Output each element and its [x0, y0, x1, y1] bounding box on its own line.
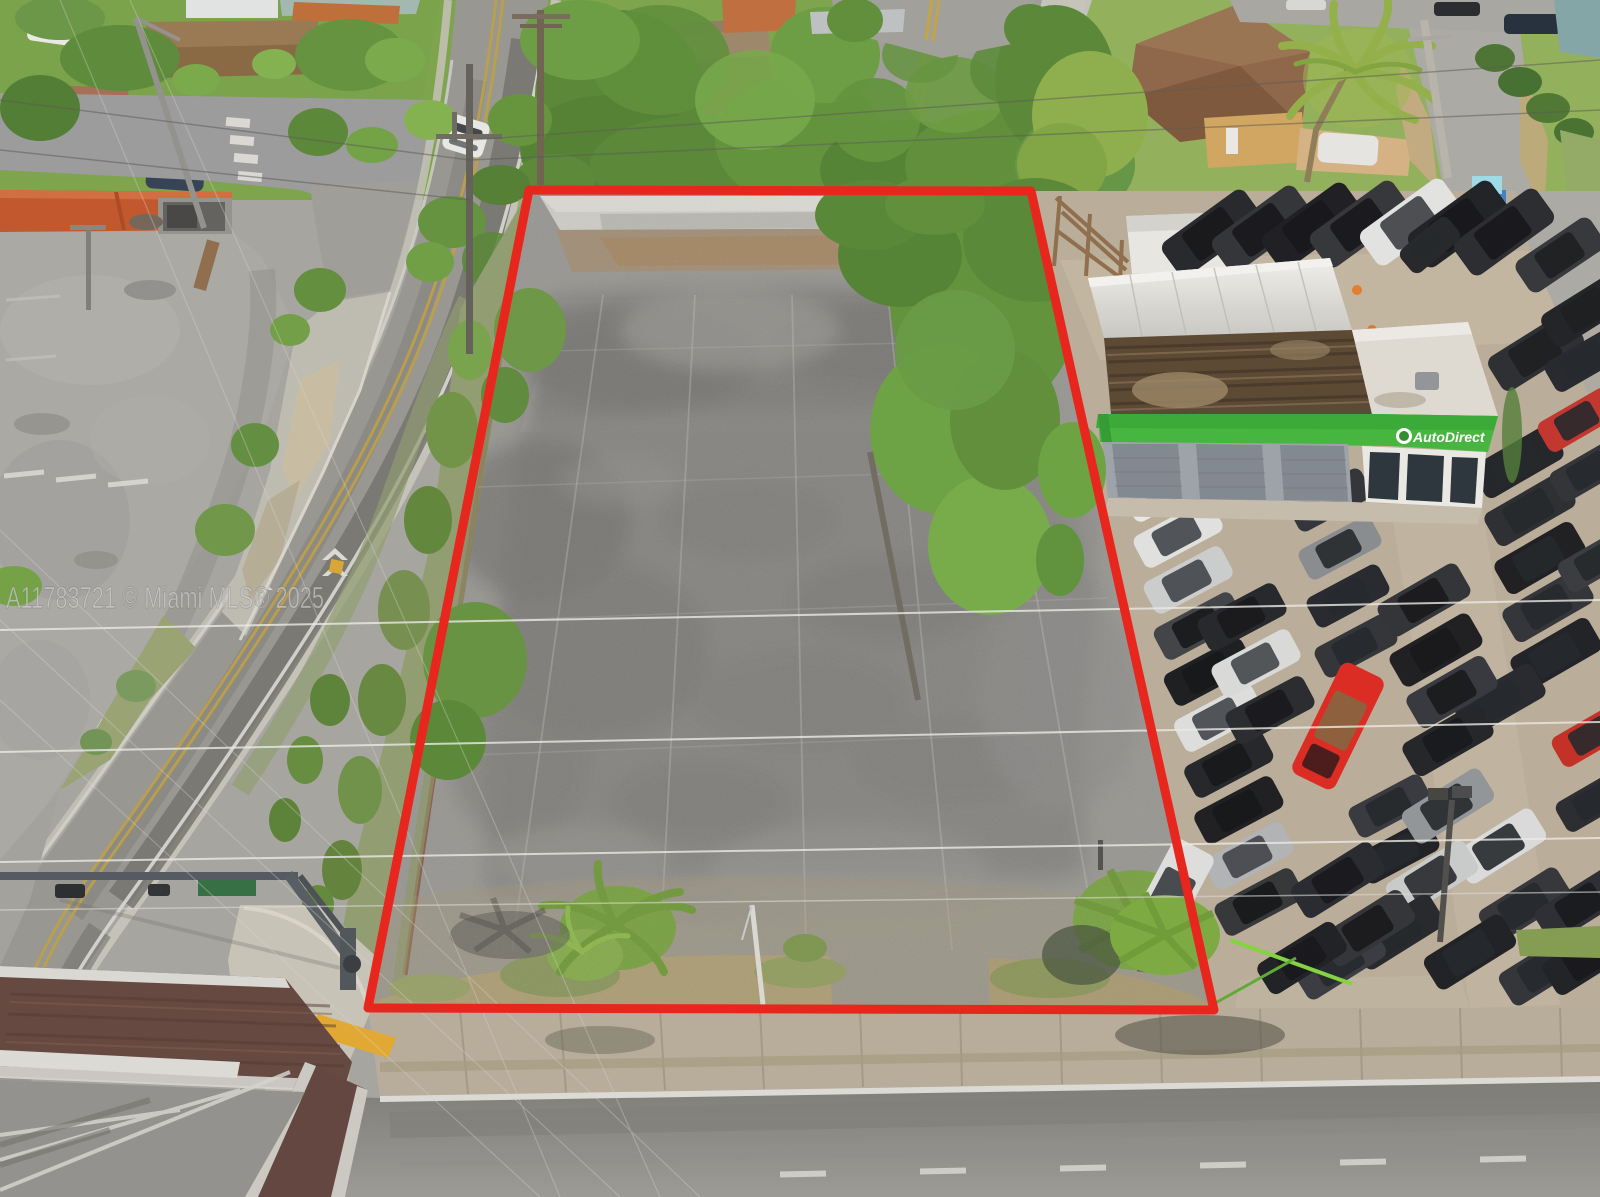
svg-text:A11783721 © Miami MLS® 2025: A11783721 © Miami MLS® 2025 [6, 580, 324, 615]
